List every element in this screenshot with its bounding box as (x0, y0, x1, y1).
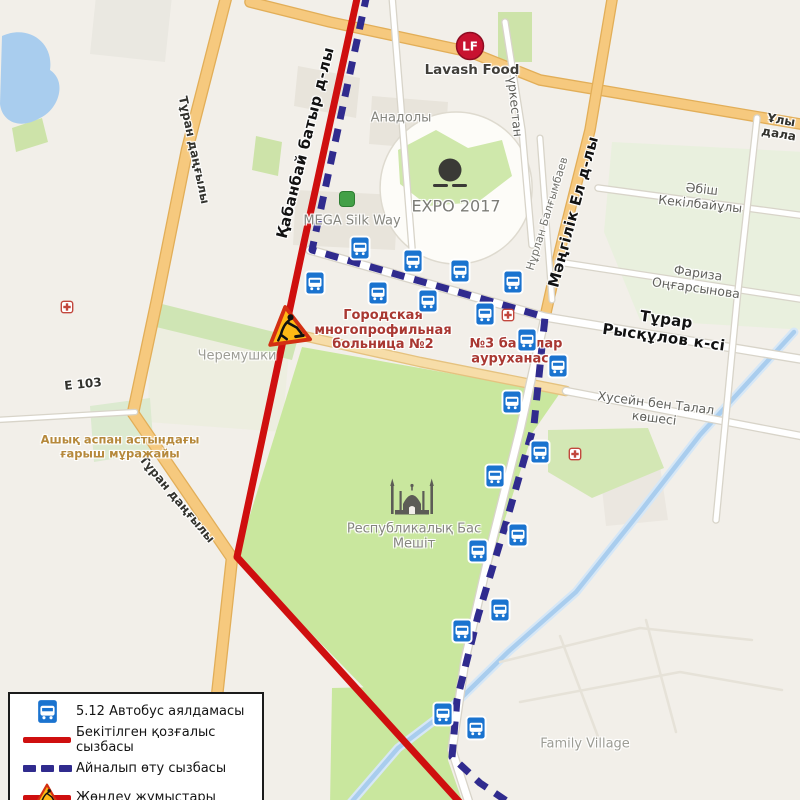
map-canvas[interactable]: Городская многопрофильная больница №2№3 … (0, 0, 800, 800)
detour-route-swatch (18, 765, 76, 772)
legend-label: Айналып өту сызбасы (76, 761, 226, 776)
legend-row-approved-route: Бекітілген қозғалыс сызбасы (18, 728, 254, 753)
bus-stop-icon[interactable] (475, 302, 496, 331)
bus-stop-icon[interactable] (503, 270, 524, 299)
bus-stop-icon[interactable] (490, 598, 511, 627)
bus-stop-icon[interactable] (548, 354, 569, 383)
bus-stop-icon[interactable] (508, 523, 529, 552)
bus-stop-icon[interactable] (530, 440, 551, 469)
legend-row-bus-stop: 5.12 Автобус аялдамасы (18, 699, 254, 724)
bus-stop-icon[interactable] (433, 702, 454, 731)
bus-stop-icon[interactable] (502, 390, 523, 419)
bus-stop-icon[interactable] (466, 716, 487, 745)
bus-stop-icon[interactable] (403, 249, 424, 278)
bus-stop-icon[interactable] (368, 281, 389, 310)
bus-stop-icon[interactable] (517, 328, 538, 357)
bus-stop-icon[interactable] (468, 539, 489, 568)
bus-stop-icon[interactable] (485, 464, 506, 493)
approved-route-swatch (18, 737, 76, 743)
bus-stop-icon[interactable] (305, 271, 326, 300)
bus-stop-icon[interactable] (450, 259, 471, 288)
legend-label: Жөндеу жұмыстары (76, 790, 216, 800)
legend: 5.12 Автобус аялдамасы Бекітілген қозғал… (8, 692, 264, 800)
legend-row-roadworks: Жөндеу жұмыстары (18, 785, 254, 800)
bus-stop-legend-icon (18, 698, 76, 725)
roadworks-icon (34, 783, 60, 800)
legend-row-detour-route: Айналып өту сызбасы (18, 756, 254, 781)
bus-stop-icon[interactable] (350, 236, 371, 265)
legend-label: Бекітілген қозғалыс сызбасы (76, 725, 254, 755)
roadworks-swatch (18, 785, 76, 800)
dashed-line-swatch (23, 765, 72, 772)
bus-stop-icon[interactable] (452, 619, 473, 648)
bus-stop-icon[interactable] (418, 289, 439, 318)
legend-label: 5.12 Автобус аялдамасы (76, 704, 244, 719)
